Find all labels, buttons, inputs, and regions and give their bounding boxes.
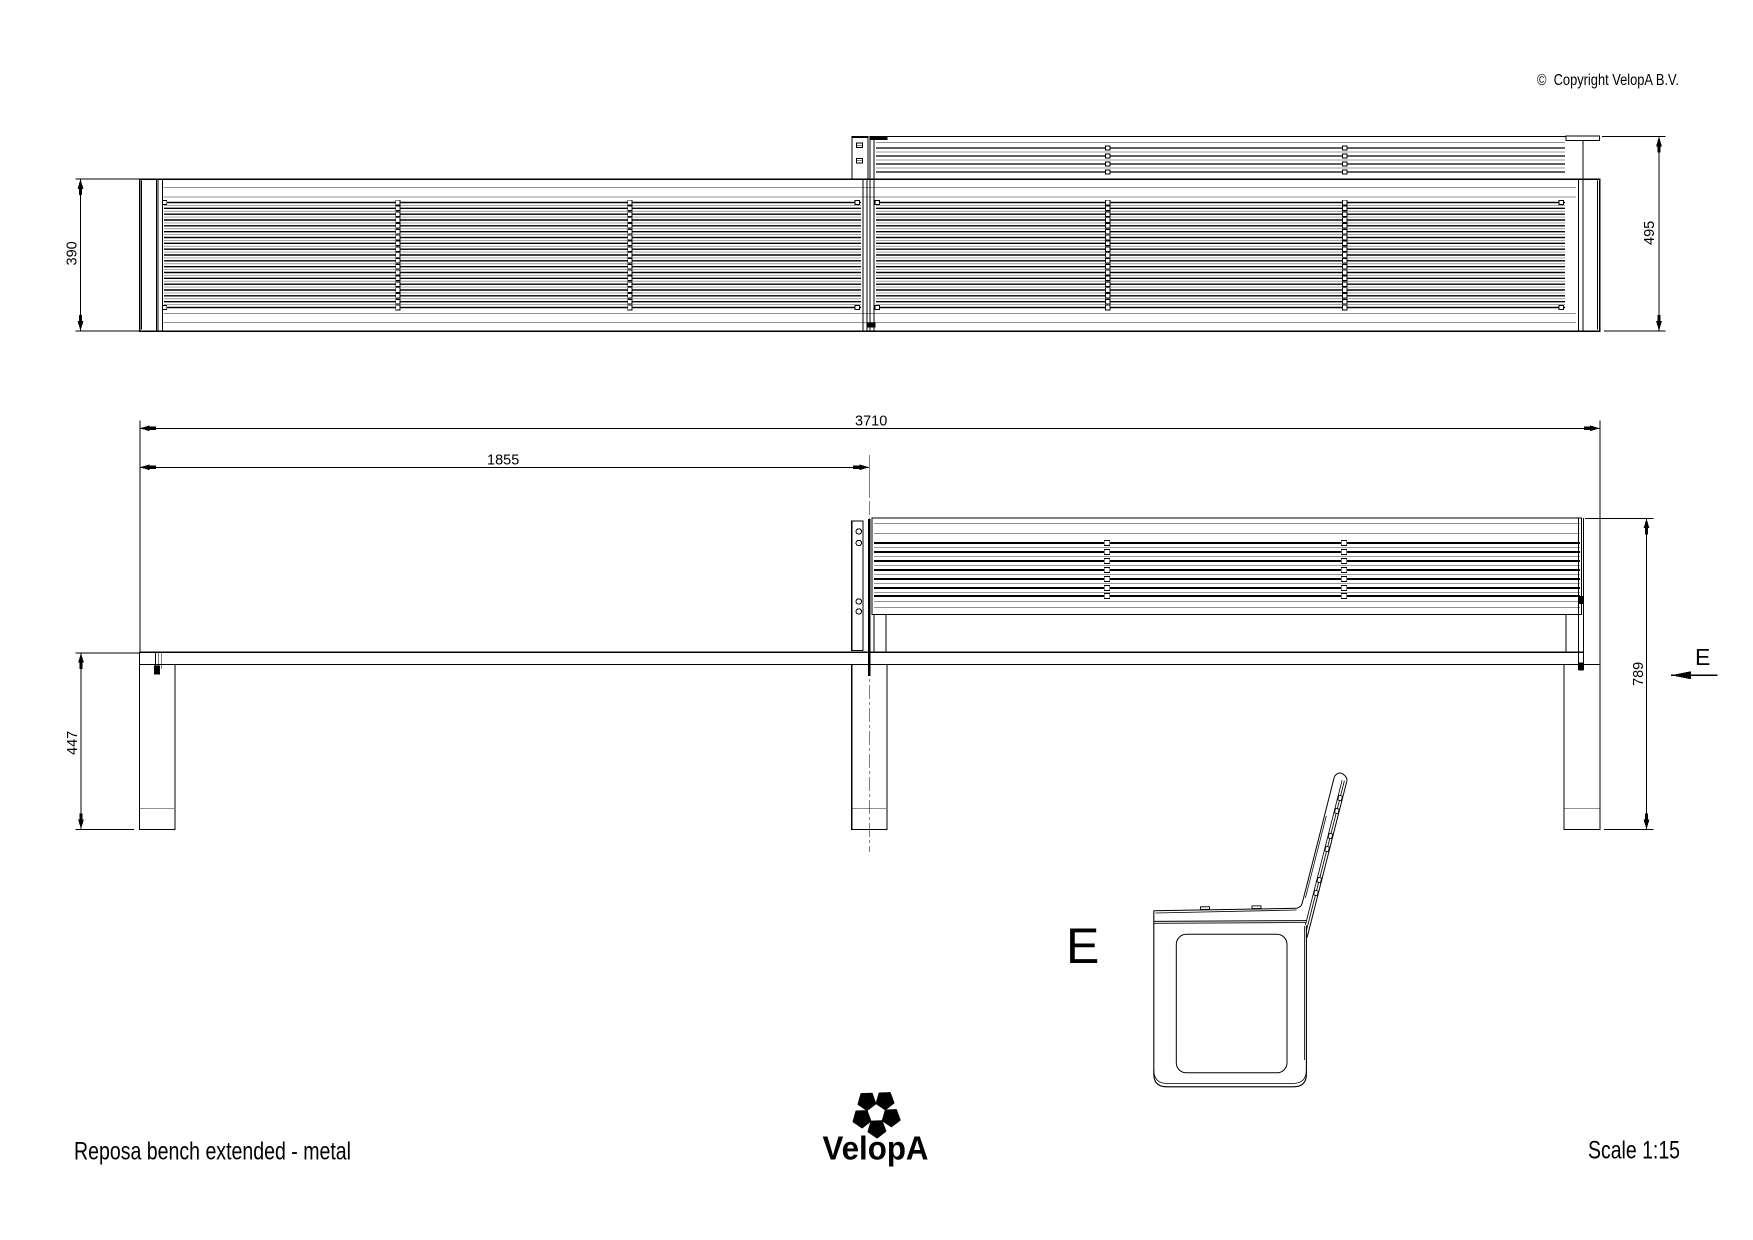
svg-text:Reposa bench extended - metal: Reposa bench extended - metal <box>74 1138 351 1166</box>
svg-text:Scale 1:15: Scale 1:15 <box>1588 1137 1680 1165</box>
svg-text:E: E <box>1695 644 1710 670</box>
svg-text:447: 447 <box>65 731 81 755</box>
svg-text:495: 495 <box>1642 221 1658 245</box>
svg-text:VelopA: VelopA <box>823 1130 929 1167</box>
svg-text:390: 390 <box>65 241 81 265</box>
svg-text:789: 789 <box>1631 662 1647 686</box>
svg-text:E: E <box>1066 918 1099 974</box>
svg-text:3710: 3710 <box>855 414 887 430</box>
svg-text:© Copyright VelopA B.V.: © Copyright VelopA B.V. <box>1537 72 1679 89</box>
svg-text:1855: 1855 <box>487 453 519 469</box>
